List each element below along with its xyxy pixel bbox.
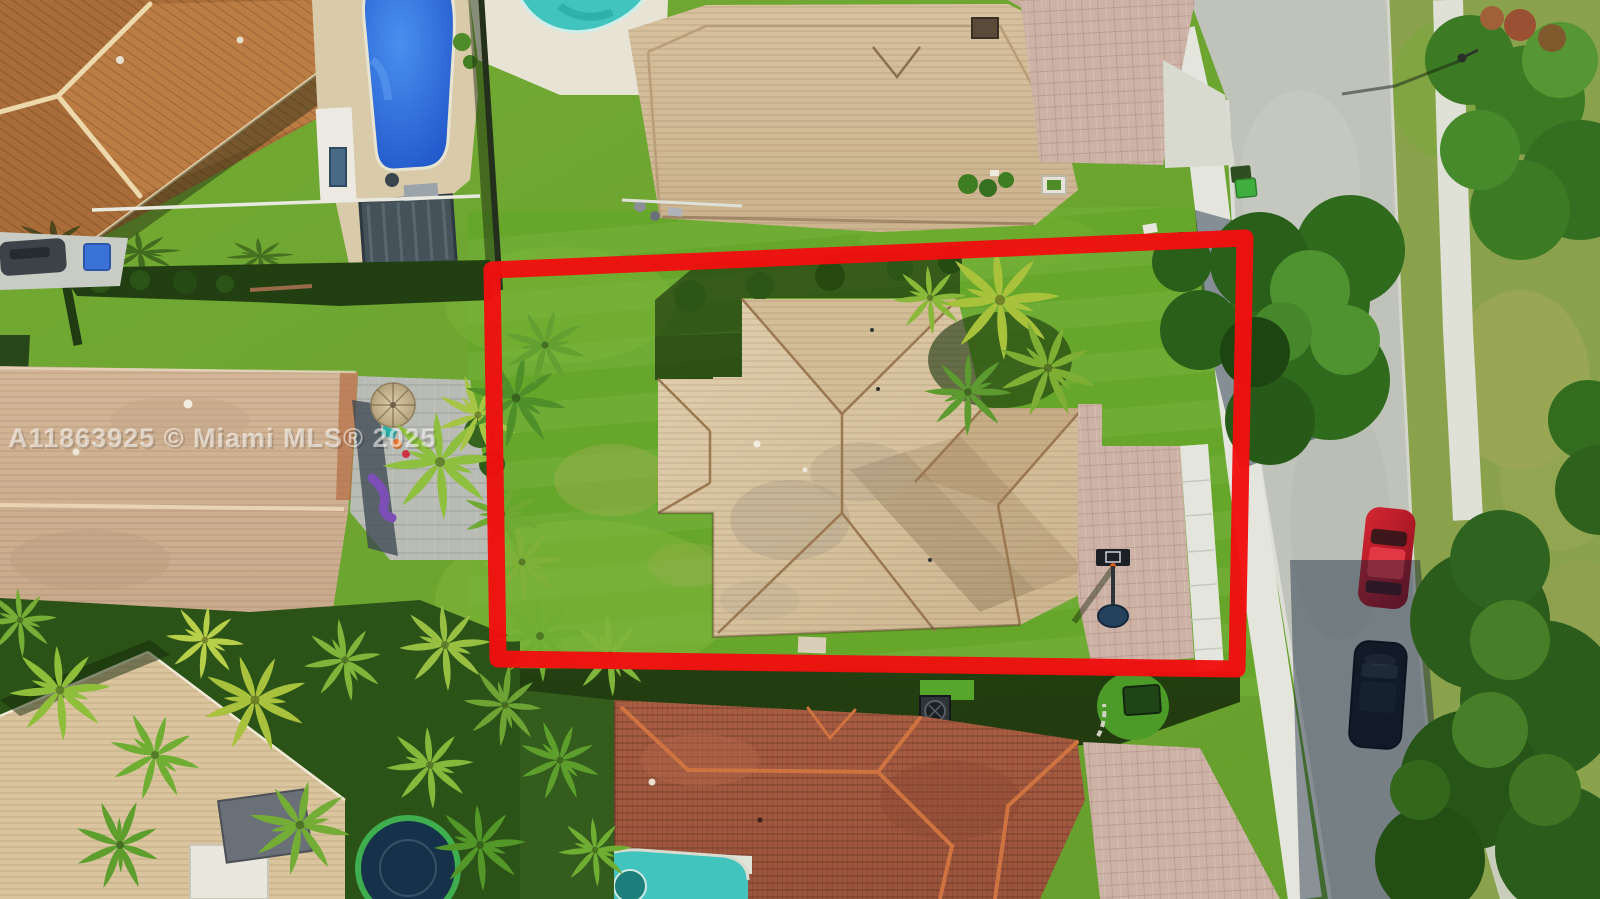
- pergola: [360, 195, 457, 269]
- green-trash-bin: [1235, 178, 1257, 198]
- west-house: [0, 366, 358, 632]
- patio-table: [385, 173, 399, 187]
- chimney: [972, 18, 998, 38]
- hot-tub: [614, 870, 646, 899]
- north-house: [622, 0, 1090, 232]
- utility-box: [1123, 685, 1161, 715]
- mls-watermark: A11863925 © Miami MLS® 2025 A11863925 © …: [8, 423, 439, 455]
- shed-window: [330, 148, 346, 186]
- entry-walk: [798, 637, 827, 654]
- patio-umbrella: [371, 383, 415, 427]
- aerial-photo: A11863925 © Miami MLS® 2025 A11863925 © …: [0, 0, 1600, 899]
- blue-recycle-bin: [84, 244, 110, 270]
- red-shrub: [1504, 9, 1536, 41]
- watermark-text: A11863925 © Miami MLS® 2025: [8, 423, 437, 453]
- roof-vent: [184, 400, 193, 409]
- roof-vent: [754, 441, 761, 448]
- aerial-photo-canvas: A11863925 © Miami MLS® 2025 A11863925 © …: [0, 0, 1600, 899]
- trampoline: [358, 818, 458, 899]
- blue-pool: [364, 0, 455, 170]
